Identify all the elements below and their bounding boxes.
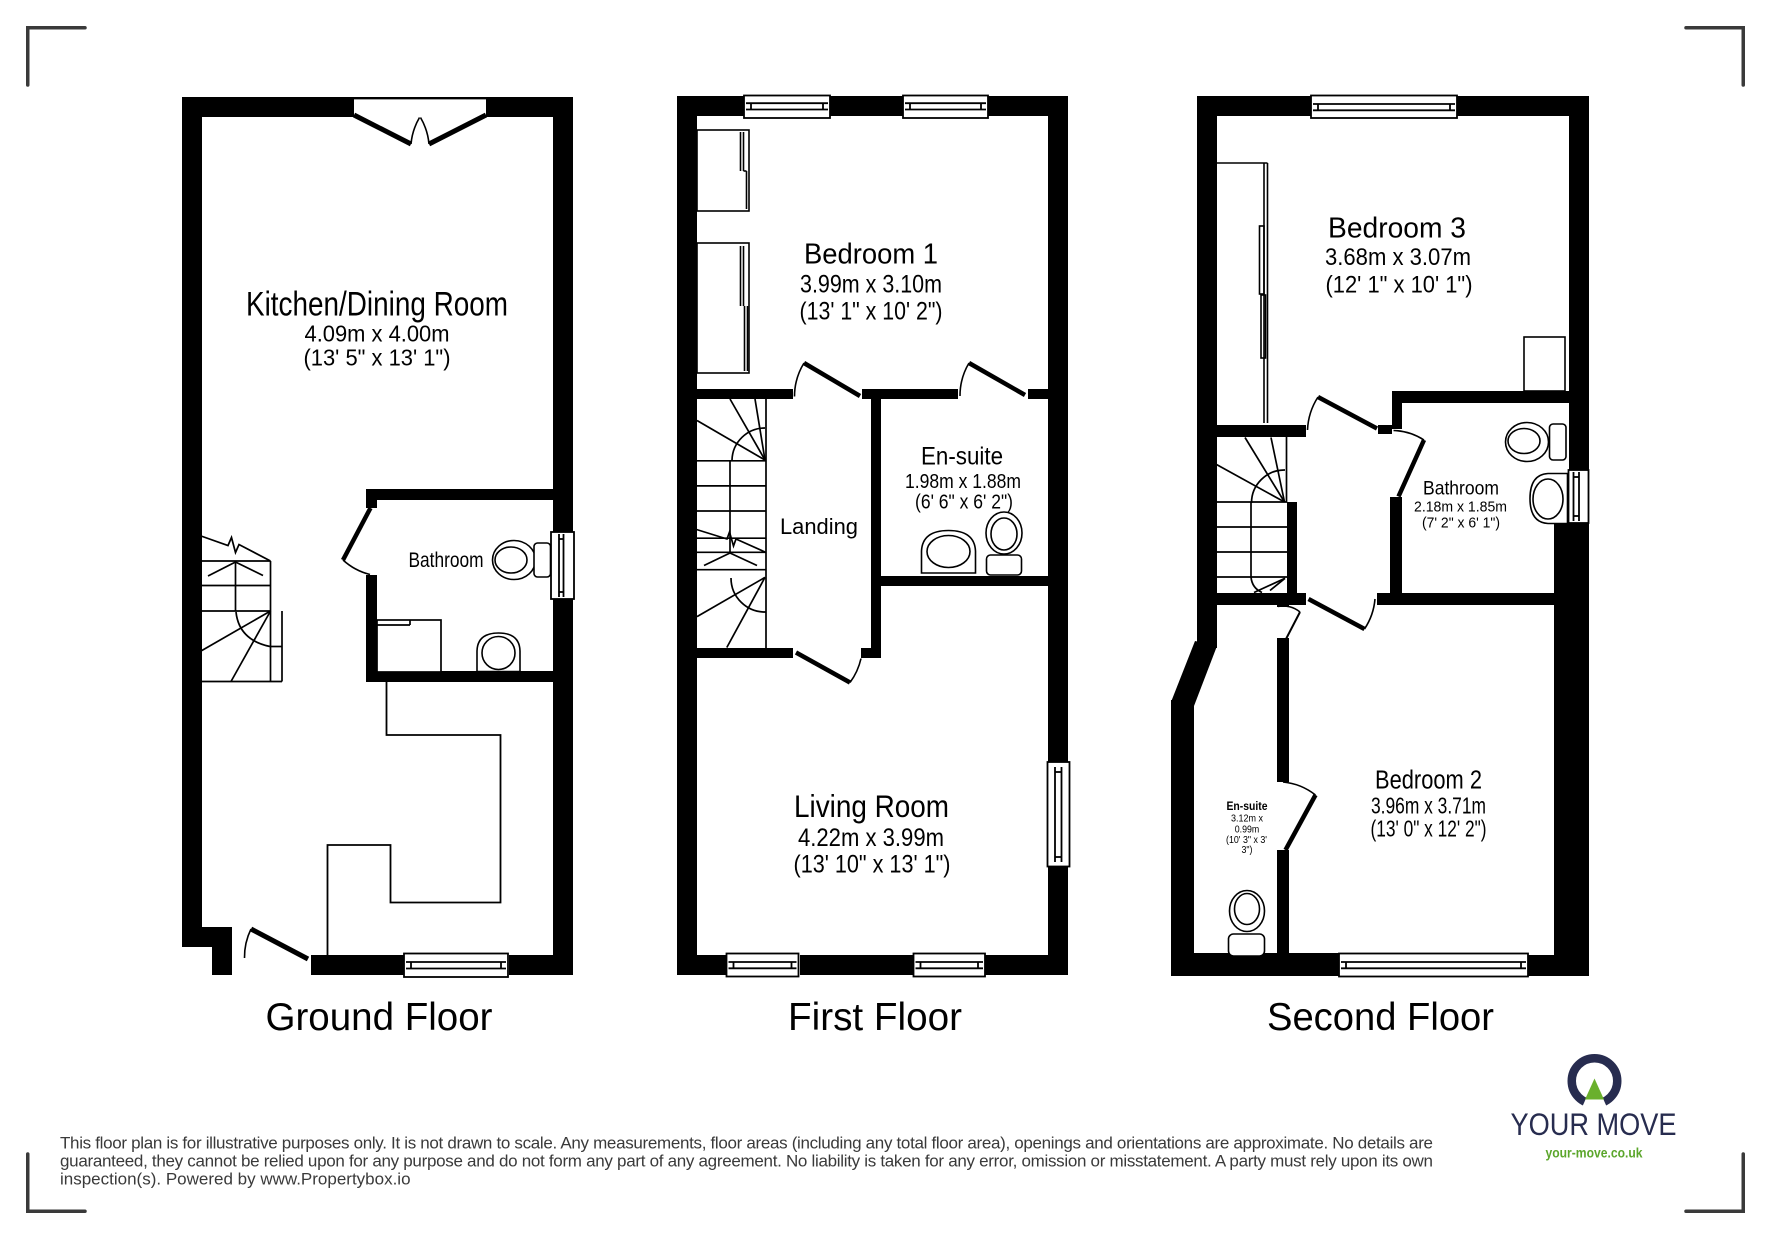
svg-text:Bathroom: Bathroom — [409, 549, 484, 572]
svg-text:(13' 10" x 13' 1"): (13' 10" x 13' 1") — [794, 851, 951, 879]
svg-text:Bedroom 3: Bedroom 3 — [1328, 213, 1466, 245]
svg-text:(7' 2" x 6' 1"): (7' 2" x 6' 1") — [1422, 516, 1500, 532]
svg-text:(13' 5" x 13' 1"): (13' 5" x 13' 1") — [304, 345, 451, 371]
svg-text:guaranteed, they cannot be rel: guaranteed, they cannot be relied upon f… — [60, 1152, 1433, 1171]
svg-text:0.99m: 0.99m — [1235, 825, 1260, 836]
svg-text:3.68m x 3.07m: 3.68m x 3.07m — [1325, 244, 1471, 271]
svg-text:4.22m x 3.99m: 4.22m x 3.99m — [798, 824, 944, 852]
svg-text:3"): 3") — [1242, 845, 1253, 856]
svg-text:2.18m x 1.85m: 2.18m x 1.85m — [1414, 500, 1507, 516]
svg-text:YOUR MOVE: YOUR MOVE — [1511, 1106, 1677, 1142]
svg-text:En-suite: En-suite — [921, 443, 1003, 471]
svg-text:3.99m x 3.10m: 3.99m x 3.10m — [800, 271, 942, 299]
svg-text:Landing: Landing — [780, 514, 858, 539]
svg-text:inspection(s). Powered by www.: inspection(s). Powered by www.Propertybo… — [60, 1170, 411, 1189]
svg-text:Kitchen/Dining Room: Kitchen/Dining Room — [246, 286, 508, 324]
svg-text:(13' 1" x 10' 2"): (13' 1" x 10' 2") — [800, 298, 943, 326]
svg-text:your-move.co.uk: your-move.co.uk — [1546, 1146, 1643, 1161]
svg-text:This floor plan is for illustr: This floor plan is for illustrative purp… — [60, 1134, 1433, 1153]
svg-text:En-suite: En-suite — [1227, 801, 1268, 813]
svg-text:(12' 1" x 10' 1"): (12' 1" x 10' 1") — [1326, 272, 1473, 299]
svg-text:Bedroom 2: Bedroom 2 — [1375, 767, 1482, 795]
svg-text:(13' 0" x 12' 2"): (13' 0" x 12' 2") — [1371, 816, 1487, 842]
svg-text:Second Floor: Second Floor — [1267, 996, 1494, 1039]
svg-text:Bathroom: Bathroom — [1423, 478, 1499, 500]
svg-text:Ground Floor: Ground Floor — [266, 996, 493, 1039]
svg-text:First Floor: First Floor — [788, 996, 962, 1039]
svg-text:Living Room: Living Room — [794, 788, 949, 824]
svg-text:3.12m x: 3.12m x — [1231, 814, 1263, 825]
svg-text:4.09m x 4.00m: 4.09m x 4.00m — [305, 321, 450, 347]
svg-text:(6' 6" x 6' 2"): (6' 6" x 6' 2") — [915, 491, 1013, 514]
svg-text:Bedroom 1: Bedroom 1 — [804, 239, 938, 271]
